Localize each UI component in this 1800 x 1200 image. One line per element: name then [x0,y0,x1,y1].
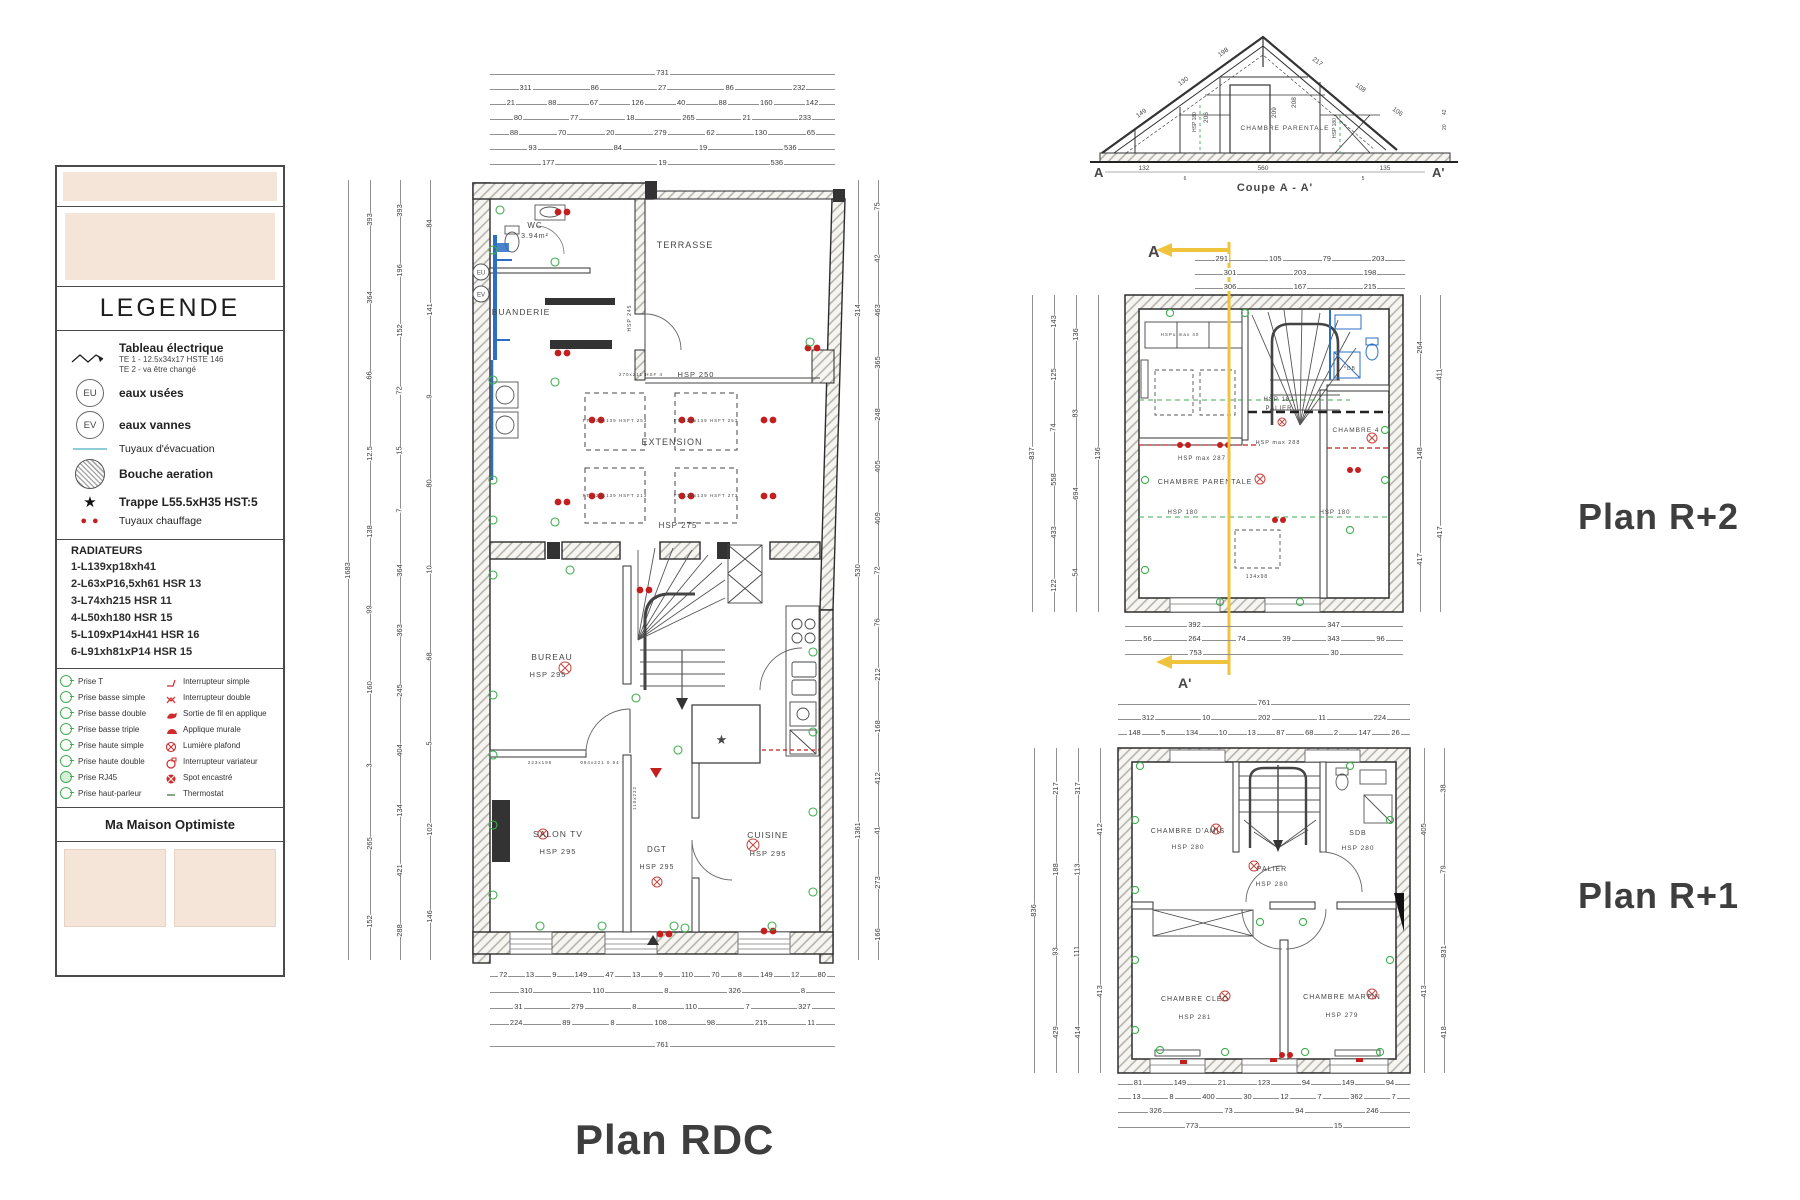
dim-label: 31 [513,1002,523,1011]
rdc-dims-top-3: 2188671264088160142 [490,98,835,107]
legend-item-evacuation: Tuyaux d'évacuation [61,443,279,455]
dim-label: 215 [1363,282,1378,291]
dim-label: 102 [424,824,435,837]
r1-dims-left-4: 412413 [1094,748,1104,1073]
dim-label: 8 [737,970,743,979]
dim-label: 21 [506,98,516,107]
staircase-r1 [1239,765,1320,848]
dim-label: 836 [1028,904,1039,917]
room-label-wc: WC [527,221,542,230]
dim-label: 146 [424,910,435,923]
dim-label: 2-L63xP16,5xh61 HSR 13 [71,576,275,593]
dim-label: 215 [754,1018,769,1027]
coupe-dim: 42 [1442,109,1448,115]
dim-label: 232 [792,83,807,92]
dim-label: 80 [513,113,523,122]
dim-label: 203 [1371,254,1386,263]
r1-dims-left-3: 317113111414 [1072,748,1082,1073]
dim-label: 362 [1349,1092,1364,1101]
door-note-2: 094x221 0.94 [580,760,619,765]
dim-label: 5 [1160,728,1166,737]
dim-label: 40 [676,98,686,107]
prise-t-icon [60,675,72,687]
dim-label: 773 [1185,1121,1200,1130]
dim-label: 301 [1223,268,1238,277]
dim-label: 326 [727,986,742,995]
dim-label: 148 [1127,728,1142,737]
dim-label: 79 [1322,254,1332,263]
dim-label: 26 [1390,728,1400,737]
dim-label: 10 [1201,713,1211,722]
r2-hspmax2-label: HSP max 288 [1256,440,1301,446]
plan-rdc-title: Plan RDC [575,1116,774,1164]
plan-rdc: EU EV [340,50,900,1060]
dim-label: 76 [872,618,883,626]
prise-haute-simple-label: Prise haute simple [78,741,162,750]
radiateurs-title: RADIATEURS [71,545,275,557]
dim-label: 4-L50xh180 HSR 15 [71,610,275,627]
dim-label: 88 [509,128,519,137]
legend-items: Tableau électrique TE 1 - 12.5x34x17 HST… [57,331,283,540]
tableau-line1: TE 1 - 12.5x34x17 HSTE 146 [119,355,224,365]
sortie-fil-label: Sortie de fil en applique [183,709,280,718]
coupe-dim: 135 [1380,165,1391,172]
dim-label: 134 [1185,728,1200,737]
dim-label: 312 [1141,713,1156,722]
dim-label: 19 [657,158,667,167]
dim-label: 87 [1275,728,1285,737]
dim-label: 89 [561,1018,571,1027]
r1-dims-top-2: 3121020211224 [1118,713,1410,722]
r1-dims-bottom-2: 138400301273627 [1118,1092,1410,1101]
rdc-dims-right-2: 7542463365248405409727621216841241273166 [872,180,882,960]
dim-label: 18 [625,113,635,122]
dim-label: 67 [589,98,599,107]
skylight-label-3: FT 129x139 HSFT 213 [583,493,648,498]
dim-label: 310 [519,986,534,995]
r2-dims-top-3: 306167215 [1195,282,1405,291]
r1-martin-label: CHAMBRE MARTIN [1303,994,1381,1001]
dim-label: 98 [706,1018,716,1027]
dim-label: 166 [872,928,883,941]
dim-label: 21 [741,113,751,122]
dim-label: 15 [1333,1121,1343,1130]
blueprint-canvas: LEGENDE Tableau électrique TE 1 - 12.5x3… [0,0,1800,1200]
dim-label: 110 [680,970,694,979]
dim-label: 81 [1133,1078,1143,1087]
dim-label: 122 [1048,579,1059,592]
ev-label: eaux vannes [119,418,191,432]
dim-label: 8 [800,986,806,995]
room-label-salon-hsp: HSP 295 [540,847,577,856]
dim-label: 72 [498,970,508,979]
dim-label: 1683 [342,562,353,579]
r1-sdb-label: SDB [1349,830,1366,837]
skylight-label-1: FT 129x139 HSFT 253 [583,418,648,423]
r2-dims-top-2: 301203198 [1195,268,1405,277]
dim-label: 68 [424,652,435,660]
dim-label: 94 [1301,1078,1311,1087]
dim-label: 99 [364,605,375,613]
tableau-line2: TE 2 - va être changé [119,365,224,375]
coupe-dim: 149 [1135,107,1148,119]
dim-label: 837 [1026,447,1037,460]
dim-label: 111 [1072,945,1083,956]
dim-label: 126 [630,98,645,107]
trappe-label: Trappe L55.5xH35 HST:5 [119,495,258,509]
coupe-dim: 217 [1311,56,1324,68]
rdc-dims-top-6: 938419536 [490,143,835,152]
dim-label: 202 [1257,713,1272,722]
dim-label: 86 [724,83,734,92]
coupe-dim: 106 [1391,106,1404,118]
prise-basse-double-icon [60,707,72,719]
room-label-terrasse: TERRASSE [657,240,714,250]
dim-label: 412 [1094,823,1105,836]
dim-label: 265 [364,837,375,850]
r2-dims-top-1: 29110579203 [1195,254,1405,263]
room-label-salon: SALON TV [533,829,583,839]
prise-haut-parleur-icon [60,787,72,799]
skylight-label-4: FT 129x139 HSFT 273 [674,493,739,498]
applique-murale-label: Applique murale [183,725,280,734]
r1-palier-hsp: HSP 280 [1256,881,1289,888]
r2-hsp180-left: HSP 180 [1168,510,1199,516]
interrupteur-variateur-label: Interrupteur variateur [183,757,280,766]
prise-basse-double-label: Prise basse double [78,709,162,718]
prise-rj45-icon [60,771,72,783]
dim-label: 30 [1242,1092,1252,1101]
lumiere-plafond-icon [165,740,176,751]
rdc-dims-bottom-2: 31011083268 [490,986,835,995]
dim-label: 3-L74xh215 HSR 11 [71,593,275,610]
room-label-dgt: DGT [647,845,667,854]
dim-label: 7 [1316,1092,1322,1101]
dim-label: 188 [1050,864,1061,877]
dim-label: 392 [1187,620,1202,629]
dim-label: 9 [551,970,557,979]
bouche-aeration-icon [75,459,105,489]
ev-marker: EV [477,293,485,299]
thermostat-icon [165,788,176,799]
eu-marker: EU [477,271,485,277]
door-note-3: 110x232 [632,786,637,810]
dim-label: 70 [557,128,567,137]
dim-label: 405 [872,460,883,473]
dim-label: 831 [1438,945,1449,958]
coupe-dim: 130 [1177,75,1190,87]
dim-label: 88 [718,98,728,107]
coupe-dim: 20 [1442,124,1448,130]
dim-label: 246 [1365,1106,1380,1115]
dim-label: 47 [604,970,614,979]
coupe-dim: 208 [1291,97,1298,108]
dim-label: 177 [541,158,556,167]
rdc-dims-left-3: 39319615272157364363245404134421288 [394,180,404,960]
r2-parentale-label: CHAMBRE PARENTALE [1158,479,1253,486]
interrupteur-variateur-icon [165,756,176,767]
bouche-label: Bouche aeration [119,467,213,481]
dim-label: 143 [1048,315,1059,328]
interrupteur-simple-label: Interrupteur simple [183,677,280,686]
dim-label: 19 [698,143,708,152]
tableau-label: Tableau électrique [119,341,223,355]
legend-title: LEGENDE [57,287,283,331]
dim-label: 412 [872,772,883,785]
dim-label: 73 [1223,1106,1233,1115]
dim-label: 12 [1279,1092,1289,1101]
dim-label: 152 [394,324,405,337]
room-label-dgt-hsp: HSP 295 [640,864,675,871]
prise-haut-parleur-label: Prise haut-parleur [78,789,162,798]
chauffage-label: Tuyaux chauffage [119,515,202,527]
legend-item-ev: EV eaux vannes [61,411,279,439]
legend-footer-block-left [64,849,166,927]
dim-label: 8 [663,986,669,995]
rdc-dims-top-2: 311862786232 [490,83,835,92]
legend-item-bouche: Bouche aeration [61,459,279,489]
spot-encastre-label: Spot encastré [183,773,280,782]
rdc-dims-top-5: 8870202796213065 [490,128,835,137]
rdc-dims-left-4: 8414198010685102146 [424,180,434,960]
plan-r2: HSPu max 40 HSP max 287 CHAMBRE PARENTAL… [1020,230,1490,700]
dim-label: 75 [872,202,883,210]
prise-t-label: Prise T [78,677,162,686]
rdc-dims-bottom-5: 761 [490,1040,835,1049]
coupe-hsp-right: HSP 180 [1332,118,1338,138]
room-label-extension-hsp: HSP 275 [659,521,698,530]
dim-label: 70 [710,970,720,979]
r2-dims-left-1: 837 [1026,295,1036,612]
skylight-label-2: FT 129x139 HSFT 253 [674,418,739,423]
dim-label: 93 [527,143,537,152]
coupe-marker-a2: A' [1432,165,1444,180]
coupe-hsp-left: HSP 180 [1192,112,1198,132]
dim-label: 364 [394,564,405,577]
dim-label: 54 [1070,568,1081,576]
r2-hsp180-right: HSP 180 [1320,510,1351,516]
room-label-cuisine-hsp: HSP 295 [750,849,787,858]
coupe-drawing: HSP 180 HSP 180 CHAMBRE PARENTALE 149 13… [1080,20,1470,195]
heating-dots [555,209,821,938]
dim-label: 217 [1050,782,1061,795]
dim-label: 21 [1217,1078,1227,1087]
dim-label: 80 [424,479,435,487]
dim-label: 94 [1294,1106,1304,1115]
dim-label: 38 [1438,784,1449,792]
dim-label: 6-L91xh81xP14 HSR 15 [71,644,275,661]
dim-label: 536 [783,143,798,152]
dim-label: 731 [655,68,670,77]
dim-label: 8 [631,1002,637,1011]
dim-label: 72 [394,386,405,394]
dim-label: 433 [1048,526,1059,539]
dim-label: 233 [798,113,813,122]
dim-label: 363 [394,624,405,637]
r1-dims-bottom-1: 81149211239414994 [1118,1078,1410,1087]
dim-label: 13 [1131,1092,1141,1101]
coupe-marker-a: A [1094,165,1104,180]
dim-label: 311 [519,83,533,92]
room-label-extension: EXTENSION [641,437,702,447]
room-label-bureau: BUREAU [531,652,572,662]
dim-label: 418 [1438,1026,1449,1039]
r1-sdb-hsp: HSP 280 [1342,845,1375,852]
dim-label: 463 [872,304,883,317]
r1-palier-label: PALIER [1257,866,1287,873]
dim-label: 8 [1168,1092,1174,1101]
dim-label: 404 [394,744,405,757]
rdc-dims-bottom-3: 3127981107327 [490,1002,835,1011]
dim-label: 7 [1390,1092,1396,1101]
dim-label: 411 [1434,368,1445,380]
r2-palier-hsp: HSP 182 [1264,397,1295,403]
dim-label: 27 [657,83,667,92]
dim-label: 68 [1304,728,1314,737]
dim-label: 167 [1293,282,1308,291]
dim-label: 149 [1341,1078,1356,1087]
prise-basse-triple-label: Prise basse triple [78,725,162,734]
tuyaux-chauffage-icon: ● ● [80,515,99,527]
room-label-buanderie: BUANDERIE [492,307,551,317]
room-label-bureau-hsp: HSP 295 [530,670,567,679]
dim-label: 12.5 [364,446,375,461]
r2-db-label: *DB [1344,366,1356,372]
dim-label: 66 [364,371,375,379]
dim-label: 138 [364,525,375,538]
dim-label: 761 [655,1040,670,1049]
coupe-room-label: CHAMBRE PARENTALE [1241,125,1330,132]
rdc-dims-right-1: 3145301361 [852,180,862,960]
dim-label: 110 [591,986,605,995]
dim-label: 8 [609,1018,615,1027]
interrupteur-simple-icon [165,676,176,687]
dim-label: 11 [806,1018,816,1027]
prise-basse-simple-icon [60,691,72,703]
eu-label: eaux usées [119,386,184,400]
dim-label: 152 [364,915,375,928]
coupe-dim: 206 [1203,112,1210,123]
plan-r1-title: Plan R+1 [1578,875,1739,917]
legend-electrical-grid: Prise T Interrupteur simple Prise basse … [57,669,283,808]
dim-label: 134 [394,804,405,817]
dim-label: 530 [852,564,863,577]
staircase-rdc [638,548,725,698]
dim-label: 11 [1317,713,1327,722]
dim-label: 72 [872,566,883,574]
dim-label: 15 [394,446,405,454]
coupe-title: Coupe A - A' [1237,182,1313,194]
coupe-dim: 198 [1217,46,1230,58]
door-note-1: 223x198 [528,760,552,765]
applique-murale-icon [165,724,176,735]
dim-label: 148 [1414,447,1425,460]
r2-dims-bottom-1: 392347 [1125,620,1403,629]
dim-label: 88 [547,98,557,107]
dim-label: 136 [1070,328,1081,341]
dim-label: 9 [658,970,664,979]
dim-label: 409 [872,512,883,525]
dim-label: 264 [1414,342,1425,355]
dim-label: 123 [1257,1078,1272,1087]
legend-footer-blocks [57,842,283,934]
r1-dims-top-3: 148513410138768214726 [1118,728,1410,737]
dim-label: 113 [1072,864,1083,876]
dim-label: 136 [1092,447,1103,460]
plan-r1: CHAMBRE D'AMIS HSP 280 SDB HSP 280 PALIE… [1020,640,1490,1140]
dim-label: 141 [424,304,435,317]
room-label-wc-area: 3.94m² [521,233,549,240]
trappe-star-icon: ★ [83,493,96,511]
rdc-dims-top-4: 80771826521233 [490,113,835,122]
r2-wardrobe-label: HSPu max 40 [1161,332,1200,337]
dim-label: 160 [364,681,375,694]
lumiere-plafond-label: Lumière plafond [183,741,280,750]
dim-label: 142 [805,98,820,107]
dim-label: 80 [817,970,827,979]
r1-martin-hsp: HSP 279 [1326,1012,1359,1019]
rdc-dims-bottom-4: 2248981089821511 [490,1018,835,1027]
dim-label: 5 [423,741,434,745]
dim-label: 761 [1257,698,1272,707]
r1-dims-right-2: 3879831418 [1438,748,1448,1073]
dim-label: 291 [1215,254,1230,263]
r1-dims-left-2: 21718893429 [1050,748,1060,1073]
r1-dims-bottom-3: 3267394246 [1118,1106,1410,1115]
legend-panel: LEGENDE Tableau électrique TE 1 - 12.5x3… [55,165,285,977]
room-label-cuisine: CUISINE [747,830,788,840]
interrupteur-double-label: Interrupteur double [183,693,280,702]
r1-dims-left-1: 836 [1028,748,1038,1073]
dim-label: 212 [872,668,883,681]
dim-label: 417 [1434,526,1445,539]
dim-label: 147 [1357,728,1372,737]
bathroom-fixtures-r1 [1336,768,1392,823]
dim-label: 74 [1048,423,1059,431]
dim-label: 10 [424,566,435,574]
r2-dims-left-4: 136 [1092,295,1102,612]
coupe-dim: 560 [1258,165,1269,172]
dim-label: 5-L109xP14xH41 HSR 16 [71,627,275,644]
dim-label: 105 [1268,254,1283,263]
evacuation-pipe-icon [73,448,107,450]
dim-label: 149 [1173,1078,1188,1087]
dim-label: 149 [574,970,589,979]
legend-radiateurs: RADIATEURS 1-L139xp18xh412-L63xP16,5xh61… [57,540,283,669]
dim-label: 414 [1072,1026,1083,1039]
coupe-dim: 108 [1354,82,1367,94]
r1-dims-top-1: 761 [1118,698,1410,707]
legend-item-tableau: Tableau électrique TE 1 - 12.5x34x17 HST… [61,341,279,375]
dim-label: 365 [872,356,883,369]
kitchen-fixtures [786,606,819,756]
dim-label: 248 [872,408,883,421]
dim-label: 13 [631,970,641,979]
dim-label: 224 [509,1018,524,1027]
dim-label: 84 [424,219,435,227]
beam-hsp: HSP 250 [678,370,715,379]
r2-dims-left-3: 1368369454 [1070,295,1080,612]
coupe-dim: 209 [1271,107,1278,118]
dim-label: 12 [790,970,800,979]
prise-haute-double-label: Prise haute double [78,757,162,766]
r1-dims-bottom-4: 77315 [1118,1121,1410,1130]
spot-encastre-icon [165,772,176,783]
dim-label: 558 [1048,474,1059,487]
dim-label: 245 [394,684,405,697]
coupe-dim: 6 [1184,176,1187,182]
r2-hspmax-label: HSP max 287 [1178,456,1226,462]
